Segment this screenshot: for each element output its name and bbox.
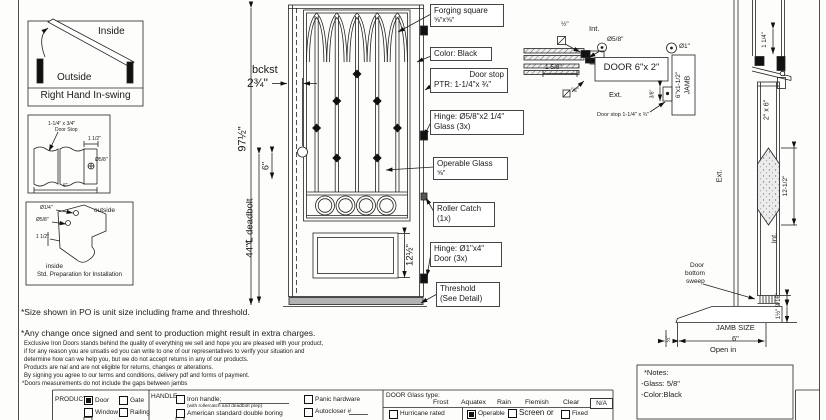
- checkbox-american-boring[interactable]: [176, 409, 185, 418]
- checkbox-screen[interactable]: [508, 409, 517, 418]
- door-height-dim: 97½": [238, 126, 249, 151]
- sweep-label-2: bottom: [685, 270, 705, 277]
- operable-label[interactable]: Operable: [478, 410, 505, 417]
- checkbox-fixed[interactable]: [561, 410, 570, 419]
- sect-112-dim: 1½": [776, 308, 782, 318]
- swing-inside-label: Inside: [98, 26, 125, 38]
- head-jamb-size: 6"x1-1/2": [676, 72, 683, 98]
- jamb-size-dim: 6": [732, 335, 739, 344]
- doorstop-dim-3: 6": [63, 184, 68, 190]
- handle-panic-label[interactable]: Panic hardware: [315, 396, 360, 403]
- sect-916-dim: 9/16": [776, 293, 782, 307]
- product-door-label[interactable]: Door: [95, 397, 109, 404]
- screen-label[interactable]: Screen or: [519, 408, 554, 417]
- sect-door-size: 2" x 6": [764, 100, 771, 120]
- handle-american-label[interactable]: American standard double boring: [187, 410, 283, 417]
- glass-option-aquatex[interactable]: Aquatex: [461, 399, 486, 407]
- deadbolt-height-dim: 44"℄ deadbolt: [245, 198, 255, 257]
- glass-option-rain[interactable]: Rain: [497, 399, 511, 407]
- hurricane-rated-label[interactable]: Hurricane rated: [400, 410, 445, 417]
- head-interior-label: Int.: [589, 25, 599, 34]
- prep-outside-label: outside: [94, 207, 115, 214]
- elevation-dimensions: [251, 8, 410, 305]
- checkbox-operable[interactable]: [467, 410, 476, 419]
- callout-operable-glass: Operable Glass⅝": [433, 157, 508, 180]
- head-38-dim: 3/8": [651, 90, 656, 99]
- handle-iron-sub-label: (with rollercatch and deadbolt prep): [187, 404, 262, 410]
- head-158-dim: 1 5/8": [545, 64, 562, 71]
- head-exterior-label: Ext.: [609, 91, 622, 100]
- sect-114-dim: 1 1/4": [762, 32, 768, 47]
- checkbox-door[interactable]: [84, 396, 93, 405]
- callout-door-stop: Door stopPTR: 1-1/4"x ¾": [430, 68, 508, 93]
- product-railing-label[interactable]: Railing: [130, 409, 150, 416]
- glass-option-frost[interactable]: Frost: [433, 399, 448, 407]
- product-window-label[interactable]: Window: [95, 409, 118, 416]
- sweep-label-3: sweep: [686, 278, 705, 285]
- sweep-label-1: Door: [690, 262, 704, 269]
- checkbox-hurricane-rated[interactable]: [389, 410, 398, 419]
- sect-exterior-label: Ext.: [715, 170, 723, 183]
- swing-title: Right Hand In-swing: [28, 90, 143, 102]
- checkbox-window[interactable]: [84, 408, 93, 417]
- swing-outside-label: Outside: [57, 72, 91, 84]
- head-jamb-label: JAMB: [685, 76, 692, 95]
- notes-title: *Notes:: [644, 369, 669, 378]
- handle-spacing-dim: 6": [262, 162, 271, 170]
- disclaimer-size-note: *Size shown in PO is unit size including…: [21, 308, 250, 318]
- sect-half-dim: ½": [666, 335, 672, 342]
- callout-threshold: Threshold(See Detail): [436, 282, 500, 307]
- backset-label: bckst: [252, 64, 278, 77]
- disclaimer-fine-3: determine how can we help you, but we do…: [24, 357, 248, 365]
- head-half-dim: ½": [561, 21, 569, 28]
- doorstop-dim-1: 1 1/2": [88, 137, 101, 143]
- checkbox-autocloser[interactable]: [304, 408, 313, 417]
- head-doorstop-note: Door stop 1-1/4" x ¾": [597, 112, 649, 118]
- shop-drawing-sheet: Inside Outside Right Hand In-swing 1-1/4…: [0, 0, 826, 420]
- disclaimer-fine-4: Products are nal and are not eligible fo…: [24, 365, 213, 373]
- rosette-ornaments: [312, 70, 402, 163]
- notes-color: -Color:Black: [641, 391, 682, 400]
- disclaimer-change-note: *Any change once signed and sent to prod…: [21, 329, 315, 339]
- callout-forging-square: Forging square⅝"x⅝": [430, 4, 504, 27]
- checkbox-iron-handle[interactable]: [176, 395, 185, 404]
- doorstop-dim-2: Ø5/8": [95, 158, 108, 164]
- disclaimer-fine-6: *Doors measurements do not include the g…: [22, 381, 187, 389]
- prep-dim-3: 1 1/2": [36, 235, 49, 241]
- disclaimer-fine-1: Exclusive Iron Doors stands behind the q…: [24, 341, 323, 349]
- prep-dim-2: Ø5/8": [36, 218, 49, 224]
- notes-glass: -Glass: 5/8": [641, 380, 680, 389]
- handle-autocloser-label[interactable]: Autocloser #: [315, 408, 351, 415]
- prep-title: Std. Preparation for Installation: [26, 271, 133, 278]
- checkbox-gate[interactable]: [119, 396, 128, 405]
- head-jamb-plan-detail: [524, 37, 695, 116]
- checkbox-panic-hardware[interactable]: [304, 395, 313, 404]
- head-door-label: DOOR 6"x 2": [595, 63, 668, 74]
- glass-option-flemish[interactable]: Flemish: [525, 399, 549, 407]
- callout-color: Color: Black: [430, 47, 492, 61]
- glass-option-clear[interactable]: Clear: [563, 399, 579, 407]
- prep-inside-label: inside: [46, 263, 63, 270]
- handle-section-label: HANDLE: [151, 393, 177, 400]
- head-dia1-dim: Ø1": [679, 43, 690, 50]
- callout-roller-catch: Roller Catch(1x): [433, 202, 495, 227]
- backset-dim: 2¾": [247, 77, 268, 91]
- open-in-label: Open in: [710, 346, 736, 355]
- glass-type-section-label: DOOR Glass type:: [386, 392, 440, 399]
- head-58-dim: ⅝": [571, 87, 579, 94]
- fixed-label[interactable]: Fixed: [572, 410, 588, 417]
- disclaimer-fine-2: if for any reason you are unsatis ed you…: [24, 349, 305, 357]
- glass-option-na[interactable]: N/A: [590, 398, 613, 409]
- sect-interior-label: Int.: [770, 233, 778, 243]
- disclaimer-fine-5: By signing you agree to our terms and co…: [24, 373, 249, 381]
- head-dia58-dim: Ø5/8": [607, 36, 623, 43]
- doorstop-callout-line2: Door Stop: [55, 128, 78, 134]
- callout-door-hinge: Hinge: Ø1"x4"Door (3x): [430, 242, 502, 267]
- checkbox-railing[interactable]: [119, 408, 128, 417]
- sect-glass-dim: 12-1/2": [783, 176, 790, 197]
- handle-iron-label[interactable]: Iron handle;: [187, 396, 221, 403]
- jamb-size-label: JAMB SIZE: [716, 324, 755, 333]
- prep-dim-1: Ø1/4": [40, 206, 53, 212]
- panel-height-dim: 12½": [405, 244, 415, 266]
- callout-glass-hinge: Hinge: Ø5/8"x2 1/4"Glass (3x): [430, 110, 524, 135]
- product-gate-label[interactable]: Gate: [130, 397, 144, 404]
